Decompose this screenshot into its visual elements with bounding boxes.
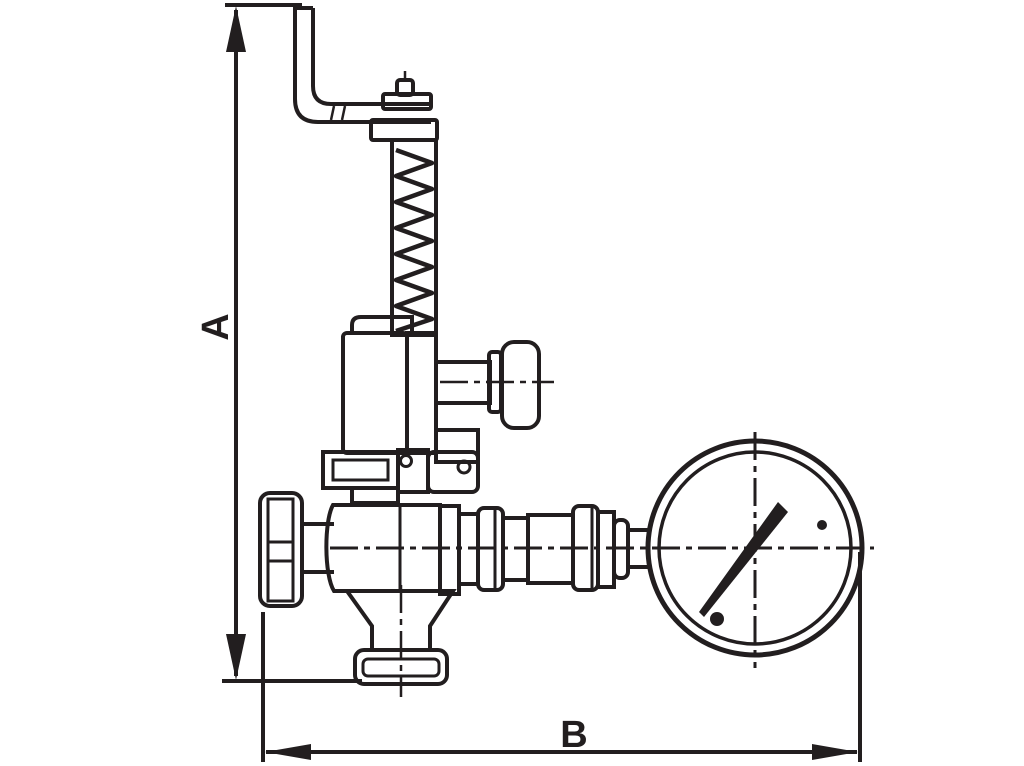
dimension-label-b: B [560, 714, 587, 756]
bottom-flange-assembly [347, 585, 453, 697]
dimension-line-a: A [195, 5, 362, 681]
arrowhead-up-icon [226, 6, 246, 52]
gauge-pivot-dot [710, 612, 724, 626]
spring-bonnet [343, 333, 478, 462]
test-knob [436, 342, 554, 428]
lever-arm [295, 8, 431, 122]
gauge-dial-dot [817, 520, 827, 530]
body-neck [352, 488, 398, 503]
outlet-step [440, 506, 459, 594]
spring-housing [352, 140, 436, 335]
bolt-head-icon [401, 456, 412, 467]
arrowhead-right-icon [812, 744, 858, 760]
valve-body [326, 488, 478, 594]
compression-spring [396, 150, 432, 331]
arrowhead-left-icon [265, 744, 311, 760]
valve-technical-drawing: A B [0, 0, 1024, 766]
pressure-gauge [330, 432, 874, 668]
arrowhead-down-icon [226, 634, 246, 680]
dimension-label-a: A [195, 313, 237, 340]
gauge-needle [699, 502, 788, 617]
body-flange [323, 450, 478, 492]
drawing-canvas: A B [0, 0, 1024, 766]
handwheel [260, 493, 334, 606]
